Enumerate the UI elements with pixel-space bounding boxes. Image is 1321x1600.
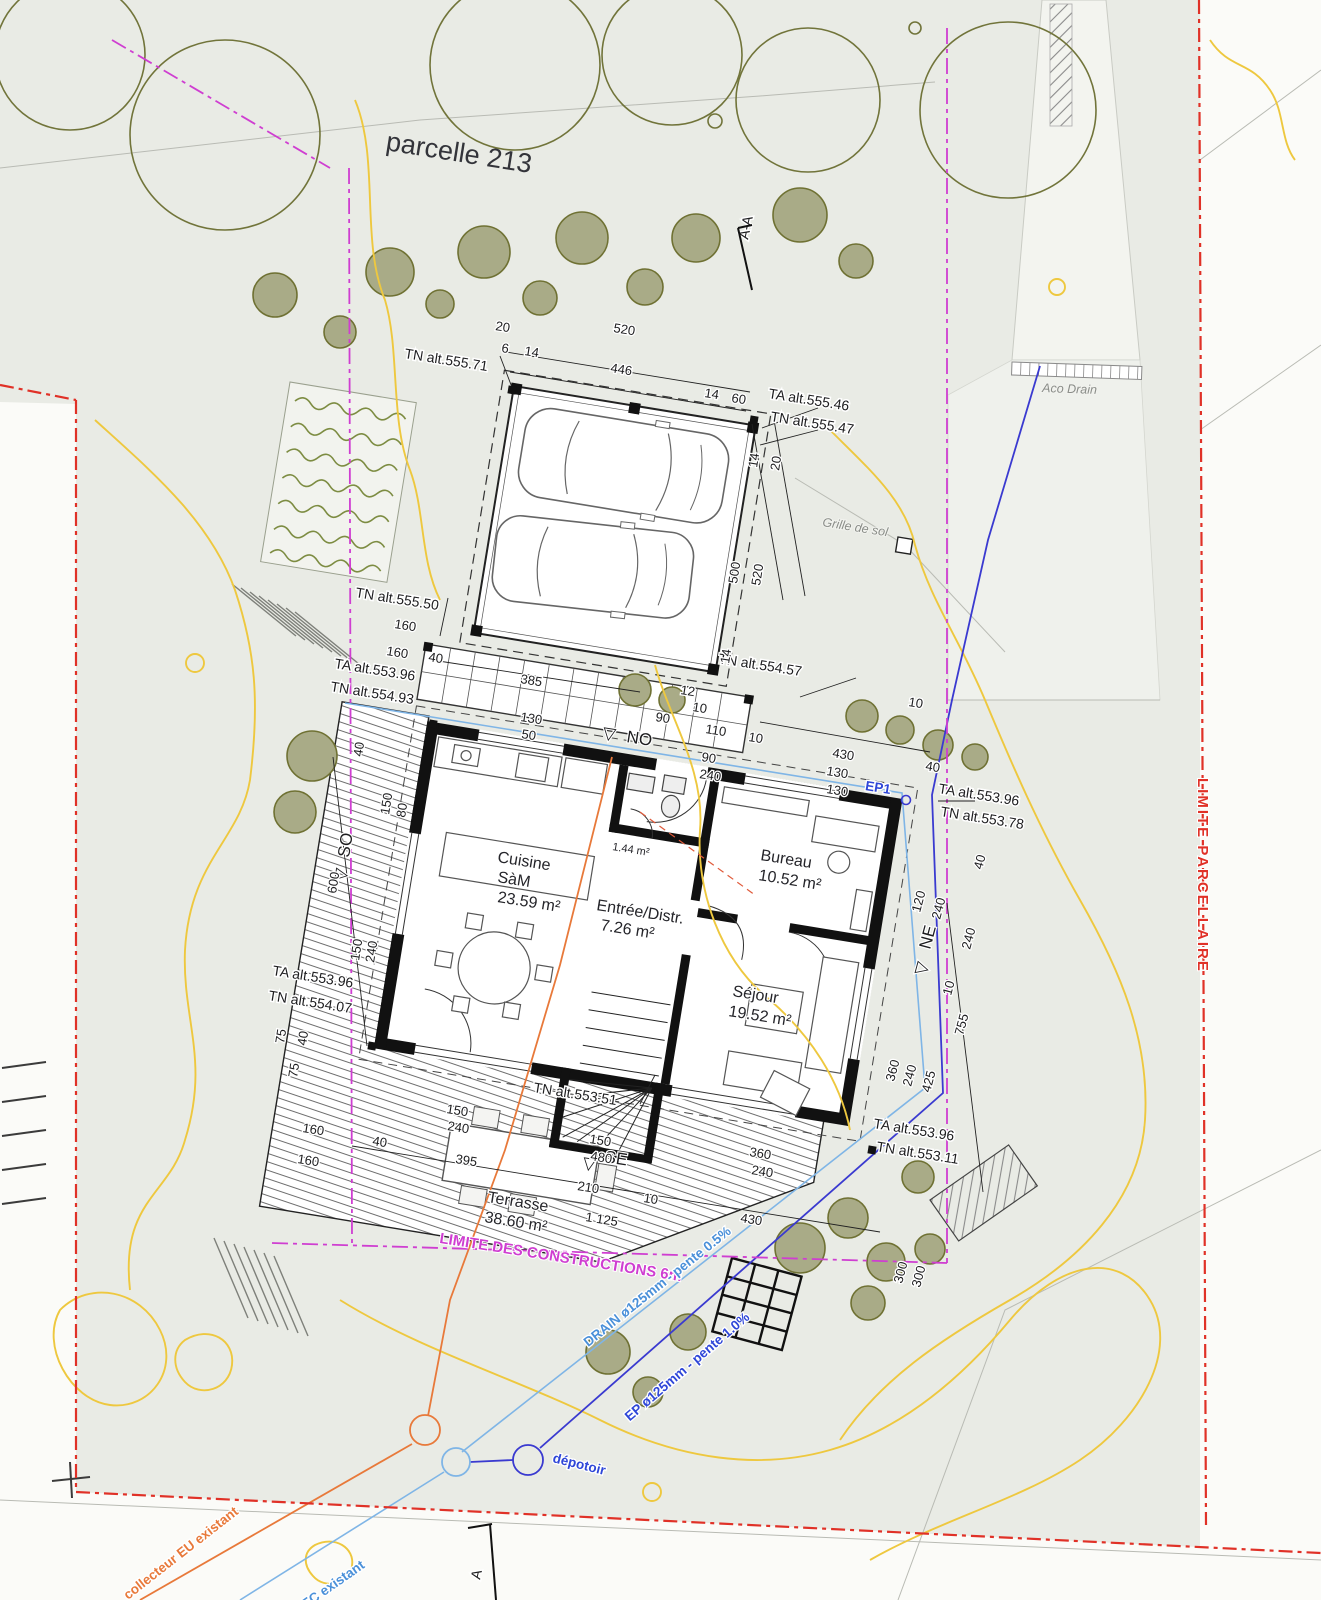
dim-label: 12 [680, 682, 697, 699]
dim-label: 90 [701, 749, 718, 766]
grille-de-sol [896, 537, 913, 554]
dim-label: 10 [748, 729, 765, 746]
driveway-lower [948, 360, 1160, 700]
dim-label: 40 [428, 649, 445, 666]
dim-label: 110 [705, 721, 728, 739]
site-plan: parcelle 213 TN alt.555.71 TA alt.555.46… [0, 0, 1321, 1600]
compass-so: SO [334, 831, 357, 858]
dim-label: 10 [643, 1190, 660, 1207]
dim-label: 10 [908, 694, 925, 711]
dim-label: 14 [524, 343, 541, 360]
dim-label: 40 [294, 1030, 311, 1047]
dim-label: 90 [655, 709, 672, 726]
aco-drain-label: Aco Drain [1041, 381, 1097, 397]
dim-label: 40 [925, 758, 942, 775]
dim-label: 80 [393, 802, 410, 819]
dim-label: 60 [731, 390, 748, 407]
right-outside-white [1200, 0, 1321, 1555]
parcel-limit-label: LIMITE PARCELLAIRE [1194, 778, 1211, 973]
dim-label: 14 [717, 648, 734, 665]
dim-label: 10 [692, 699, 709, 716]
dim-label: 20 [495, 318, 512, 335]
dim-label: 40 [350, 741, 367, 758]
driveway-hatch-bar [1050, 4, 1072, 126]
dim-label: 40 [372, 1133, 389, 1150]
dim-label: 75 [285, 1062, 302, 1079]
dim-label: 14 [745, 452, 762, 469]
dim-label: 20 [767, 455, 784, 472]
dim-label: 50 [521, 726, 538, 743]
dim-label: 14 [704, 385, 721, 402]
dim-label: 75 [272, 1028, 289, 1045]
site-plan-drawing: parcelle 213 TN alt.555.71 TA alt.555.46… [0, 0, 1321, 1600]
compass-no: NO [625, 727, 653, 750]
